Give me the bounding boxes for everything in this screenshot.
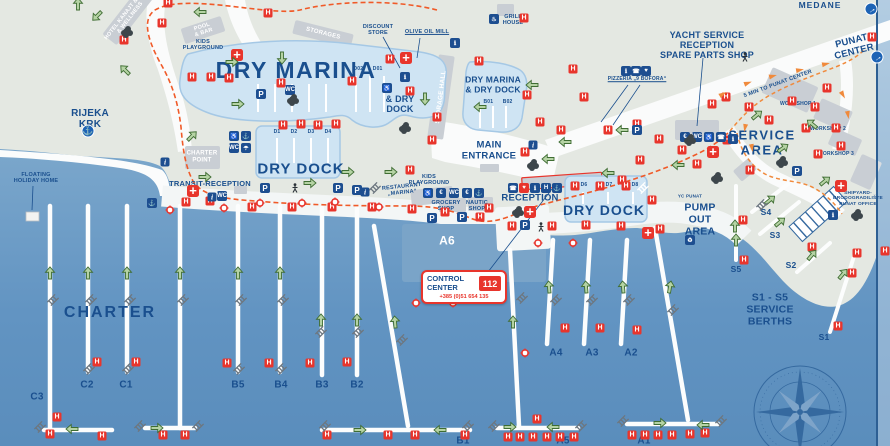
ladder-icon [616,414,630,428]
label-dry-dock-1: DRY DOCK [257,162,344,179]
hydrant-icon: H [641,431,650,440]
direction-arrow-icon [88,7,106,25]
label-d4: D4 [325,130,332,136]
amenity-icon: ♥ [519,183,529,193]
hydrant-icon: H [678,146,687,155]
tree-icon [529,161,537,169]
map-overlay: HOTEL KANAJT & SPA & WELLNESSPOOL & BARS… [0,0,890,446]
direction-arrow-icon [543,279,555,295]
hydrant-icon: H [570,433,579,442]
amenity-icon: ☎ [631,66,641,76]
hydrant-icon: H [98,432,107,441]
hydrant-icon: H [504,433,513,442]
hydrant-icon: H [596,324,605,333]
hydrant-icon: H [386,55,395,64]
hydrant-icon: H [596,182,605,191]
hydrant-icon: H [556,433,565,442]
amenity-icon: ♿ [382,83,392,93]
direction-arrow-icon [473,102,488,113]
road-sign-icon: → [862,0,880,18]
hydrant-icon: H [520,14,529,23]
first-aid-icon: + [642,227,654,239]
hydrant-icon: H [279,121,288,130]
hydrant-icon: H [441,208,450,217]
tree-icon [514,208,522,216]
hydrant-icon: H [548,222,557,231]
tree-icon [778,158,786,166]
direction-arrow-icon [45,266,56,281]
amenity-icon: WC [285,85,295,95]
label-d2: D2 [291,130,298,136]
label-pier-a2: A2 [624,347,637,358]
pedestrian-icon [292,183,299,193]
ladder-icon [515,291,529,305]
hydrant-icon: H [343,358,352,367]
hydrant-icon: H [557,126,566,135]
hydrant-icon: H [628,431,637,440]
direction-arrow-icon [384,167,399,178]
hydrant-icon: H [529,433,538,442]
tree-icon [123,28,131,36]
control-center-card: CONTROL CENTER 112 +385 (0)51 654 135 [421,270,507,304]
label-pier-s3: S3 [770,231,781,241]
pedestrian-icon [742,52,749,62]
route-arrow-icon [844,110,852,119]
direction-arrow-icon [508,315,519,330]
amenity-icon: WC [449,188,459,198]
hydrant-icon: H [740,256,749,265]
first-aid-icon: + [187,185,199,197]
hydrant-icon: H [814,150,823,159]
lifebuoy-icon [521,349,530,358]
direction-arrow-icon [617,279,629,295]
amenity-icon: ⚓ [552,183,562,193]
first-aid-icon: + [524,206,536,218]
label-pier-b2: B2 [350,379,363,390]
direction-arrow-icon [175,266,186,281]
road-sign-icon: ⚓ [82,125,95,138]
lifebuoy-icon [412,299,421,308]
label-pool-bar: POOL & BAR [192,21,213,38]
tree-icon [401,124,409,132]
direction-arrow-icon [275,266,286,281]
label-d1: D1 [274,130,281,136]
label-pier-s1: S1 [819,333,830,343]
label-pump-out-area: PUMP OUT AREA [684,202,715,237]
tree-icon [853,211,861,219]
direction-arrow-icon [653,418,668,429]
amenity-icon: ℹ [828,210,838,220]
first-aid-icon: + [835,180,847,192]
marina-map: HOTEL KANAJT & SPA & WELLNESSPOOL & BARS… [0,0,890,446]
info-icon: i [161,158,170,167]
label-pier-c3: C3 [30,391,43,402]
ladder-icon [714,414,728,428]
lifebuoy-icon [166,206,175,215]
ladder-icon [191,419,205,433]
amenity-icon: ♻ [685,235,695,245]
first-aid-icon: + [400,52,412,64]
parking-icon: P [520,220,530,230]
direction-arrow-icon [231,99,246,110]
direction-arrow-icon [803,246,821,265]
parking-icon: P [632,125,642,135]
label-pier-b3: B3 [315,379,328,390]
hydrant-icon: H [297,120,306,129]
hydrant-icon: H [746,166,755,175]
hydrant-icon: H [543,433,552,442]
amenity-icon: WC [217,191,227,201]
label-workshop-3: WORKSHOP 3 [818,152,854,158]
hydrant-icon: H [656,225,665,234]
hydrant-icon: H [306,359,315,368]
ladder-icon [549,293,563,307]
label-charter: CHARTER [64,304,156,322]
hydrant-icon: H [569,65,578,74]
hydrant-icon: H [53,413,62,422]
hydrant-icon: H [561,324,570,333]
label-yacht-service: YACHT SERVICE RECEPTION SPARE PARTS SHOP [660,30,754,60]
hydrant-icon: H [622,182,631,191]
lifebuoy-icon [534,239,543,248]
amenity-icon: WC [229,143,239,153]
hydrant-icon: H [223,359,232,368]
direction-arrow-icon [277,51,288,66]
hydrant-icon: H [571,182,580,191]
label-pier-c2: C2 [80,379,93,390]
hydrant-icon: H [654,431,663,440]
amenity-icon: € [436,188,446,198]
hydrant-icon: H [868,33,877,42]
amenity-icon: ⚓ [241,131,251,141]
route-arrow-icon [795,66,804,74]
label-shipyard: SHIPYARD- BRODOGRADILIŠTE PUNAT OFFICE [833,191,883,207]
amenity-icon: H [541,183,551,193]
label-medane: MEDANE [799,1,842,11]
ladder-icon [176,293,190,307]
label-olive-oil-mill: OLIVE OIL MILL [405,29,449,35]
direction-arrow-icon [503,422,518,433]
direction-arrow-icon [730,219,741,234]
direction-arrow-icon [420,92,431,107]
hydrant-icon: H [433,113,442,122]
direction-arrow-icon [83,266,94,281]
route-arrow-icon [821,60,830,69]
hydrant-icon: H [288,203,297,212]
hydrant-icon: H [832,124,841,133]
label-floating-holiday-home: FLOATING HOLIDAY HOME [14,172,59,184]
hydrant-icon: H [265,359,274,368]
hydrant-icon: H [408,205,417,214]
ladder-icon [622,293,636,307]
ladder-icon [487,419,501,433]
hydrant-icon: H [617,222,626,231]
ladder-icon [133,419,147,433]
direction-arrow-icon [225,57,240,68]
hydrant-icon: H [668,431,677,440]
hydrant-icon: H [406,166,415,175]
direction-arrow-icon [433,425,448,436]
direction-arrow-icon [546,422,561,433]
amenity-icon: ♨ [489,14,499,24]
direction-arrow-icon [771,213,790,231]
amenity-icon: ℹ [450,38,460,48]
label-pier-b5: B5 [231,379,244,390]
route-arrow-icon [743,78,753,87]
label-main-entrance: MAIN ENTRANCE [462,140,516,161]
route-arrow-icon [748,143,756,152]
parking-icon: P [260,183,270,193]
hydrant-icon: H [508,222,517,231]
amenity-icon: ℹ [728,134,738,144]
lifebuoy-icon [298,199,307,208]
amenity-icon: ℹ [530,183,540,193]
lifebuoy-icon [569,239,578,248]
hydrant-icon: H [811,103,820,112]
direction-arrow-icon [150,423,165,434]
hydrant-icon: H [823,84,832,93]
hydrant-icon: H [686,430,695,439]
ladder-icon [274,362,288,376]
tree-icon [713,174,721,182]
label-dry-marina-dry-dock: DRY MARINA & DRY DOCK [465,75,521,94]
hydrant-icon: H [384,431,393,440]
first-aid-icon: + [707,146,719,158]
hydrant-icon: H [853,249,862,258]
hydrant-icon: H [582,221,591,230]
parking-icon: P [427,213,437,223]
direction-arrow-icon [663,279,676,296]
ladder-icon [395,333,409,347]
hydrant-icon: H [648,196,657,205]
hydrant-icon: H [485,204,494,213]
direction-arrow-icon [122,266,133,281]
direction-arrow-icon [353,425,368,436]
direction-arrow-icon [580,279,592,295]
direction-arrow-icon [541,154,556,165]
direction-arrow-icon [731,233,742,248]
label-d3: D3 [308,130,315,136]
label-amp-dry-dock: & DRY DOCK [386,94,415,114]
tree-icon [289,96,297,104]
direction-arrow-icon [601,168,616,179]
amenity-icon: ⚓ [147,198,157,208]
hydrant-icon: H [182,198,191,207]
hydrant-icon: H [516,433,525,442]
hydrant-icon: H [881,247,890,256]
amenity-icon: ☎ [508,183,518,193]
direction-arrow-icon [525,80,540,91]
amenity-icon: ☎ [716,132,726,142]
direction-arrow-icon [615,125,630,136]
amenity-icon: ⚓ [474,188,484,198]
hydrant-icon: H [837,142,846,151]
label-a6: A6 [439,234,455,247]
parking-icon: P [792,166,802,176]
label-yc-punat: YC PUNAT [678,193,702,198]
label-charter-point: CHARTER POINT [187,150,218,163]
amenity-icon: ♿ [229,131,239,141]
label-restaurant-marina: RESTAURANT „MARINA“ [382,182,423,198]
ladder-icon [234,293,248,307]
hydrant-icon: H [655,135,664,144]
hydrant-icon: H [46,430,55,439]
ladder-icon [585,293,599,307]
hydrant-icon: H [604,126,613,135]
hydrant-icon: H [834,322,843,331]
label-b01-b02: B01 B02 [483,100,512,106]
label-discount-store: DISCOUNT STORE [363,24,393,36]
label-pier-b4: B4 [274,379,287,390]
info-icon: i [208,193,217,202]
label-pier-s5: S5 [731,265,742,275]
direction-arrow-icon [389,314,401,330]
hydrant-icon: H [523,91,532,100]
hydrant-icon: H [158,19,167,28]
hydrant-icon: H [533,415,542,424]
parking-icon: P [256,89,266,99]
label-d7: D7 [606,183,613,189]
ladder-icon [276,293,290,307]
hydrant-icon: H [580,93,589,102]
hydrant-icon: H [788,97,797,106]
direction-arrow-icon [341,167,356,178]
amenity-icon: ♿ [704,132,714,142]
amenity-icon: ℹ [400,72,410,82]
direction-arrow-icon [73,0,84,12]
route-arrow-icon [741,123,749,132]
direction-arrow-icon [233,266,244,281]
ladder-icon [46,293,60,307]
ladder-icon [666,303,680,317]
ladder-icon [232,362,246,376]
info-icon: i [529,141,538,150]
direction-arrow-icon [116,61,134,79]
label-pizzeria: PIZZERIA „9 BOFORA“ [608,77,667,83]
direction-arrow-icon [834,265,852,284]
hydrant-icon: H [332,120,341,129]
label-d6: D6 [581,183,588,189]
hydrant-icon: H [188,73,197,82]
lifebuoy-icon [375,203,384,212]
route-arrow-icon [768,72,778,81]
route-arrow-icon [838,90,848,100]
hydrant-icon: H [348,77,357,86]
lifebuoy-icon [331,198,340,207]
hydrant-icon: H [225,74,234,83]
hydrant-icon: H [536,118,545,127]
label-pier-a3: A3 [585,347,598,358]
label-five-min: 5 MIN TO PUNAT CENTER [743,69,813,99]
label-pier-c1: C1 [119,379,132,390]
parking-icon: P [457,212,467,222]
direction-arrow-icon [198,172,213,183]
hydrant-icon: H [181,431,190,440]
hydrant-icon: H [164,0,173,8]
label-storages: STORAGES [305,26,341,41]
hydrant-icon: H [708,100,717,109]
direction-arrow-icon [193,7,208,18]
amenity-icon: € [462,188,472,198]
label-pier-s2: S2 [786,261,797,271]
hydrant-icon: H [636,156,645,165]
hydrant-icon: H [475,57,484,66]
control-center-phone: +385 (0)51 654 135 [427,294,501,300]
label-dry-dock-2: DRY DOCK [563,203,645,219]
label-pier-a4: A4 [549,347,562,358]
direction-arrow-icon [816,172,835,190]
label-reception: RECEPTION [501,194,558,205]
amenity-icon: ♿ [423,188,433,198]
tree-icon [686,136,694,144]
parking-icon: P [333,183,343,193]
direction-arrow-icon [183,127,201,145]
pedestrian-icon [538,222,545,232]
amenity-icon: ♥ [641,66,651,76]
control-center-title: CONTROL CENTER [427,275,476,292]
ladder-icon [368,181,382,195]
label-d02-d01: D02 D01 [353,67,382,73]
ladder-icon [574,419,588,433]
hydrant-icon: H [765,116,774,125]
amenity-icon: ℹ [621,66,631,76]
lifebuoy-icon [256,199,265,208]
hydrant-icon: H [264,9,273,18]
direction-arrow-icon [303,178,318,189]
hydrant-icon: H [411,431,420,440]
hydrant-icon: H [120,36,129,45]
direction-arrow-icon [696,420,711,431]
label-s1-s5-berths: S1 - S5 SERVICE BERTHS [746,292,793,327]
hydrant-icon: H [693,160,702,169]
lifebuoy-icon [220,204,229,213]
direction-arrow-icon [671,160,686,171]
hydrant-icon: H [406,87,415,96]
direction-arrow-icon [65,424,80,435]
label-kids-playground-1: KIDS PLAYGROUND [183,39,224,51]
hydrant-icon: H [633,326,642,335]
amenity-icon: ☂ [241,143,251,153]
hydrant-icon: H [428,136,437,145]
hydrant-icon: H [207,73,216,82]
hydrant-icon: H [314,121,323,130]
emergency-112-badge: 112 [479,276,501,291]
direction-arrow-icon [558,137,573,148]
hydrant-icon: H [476,213,485,222]
